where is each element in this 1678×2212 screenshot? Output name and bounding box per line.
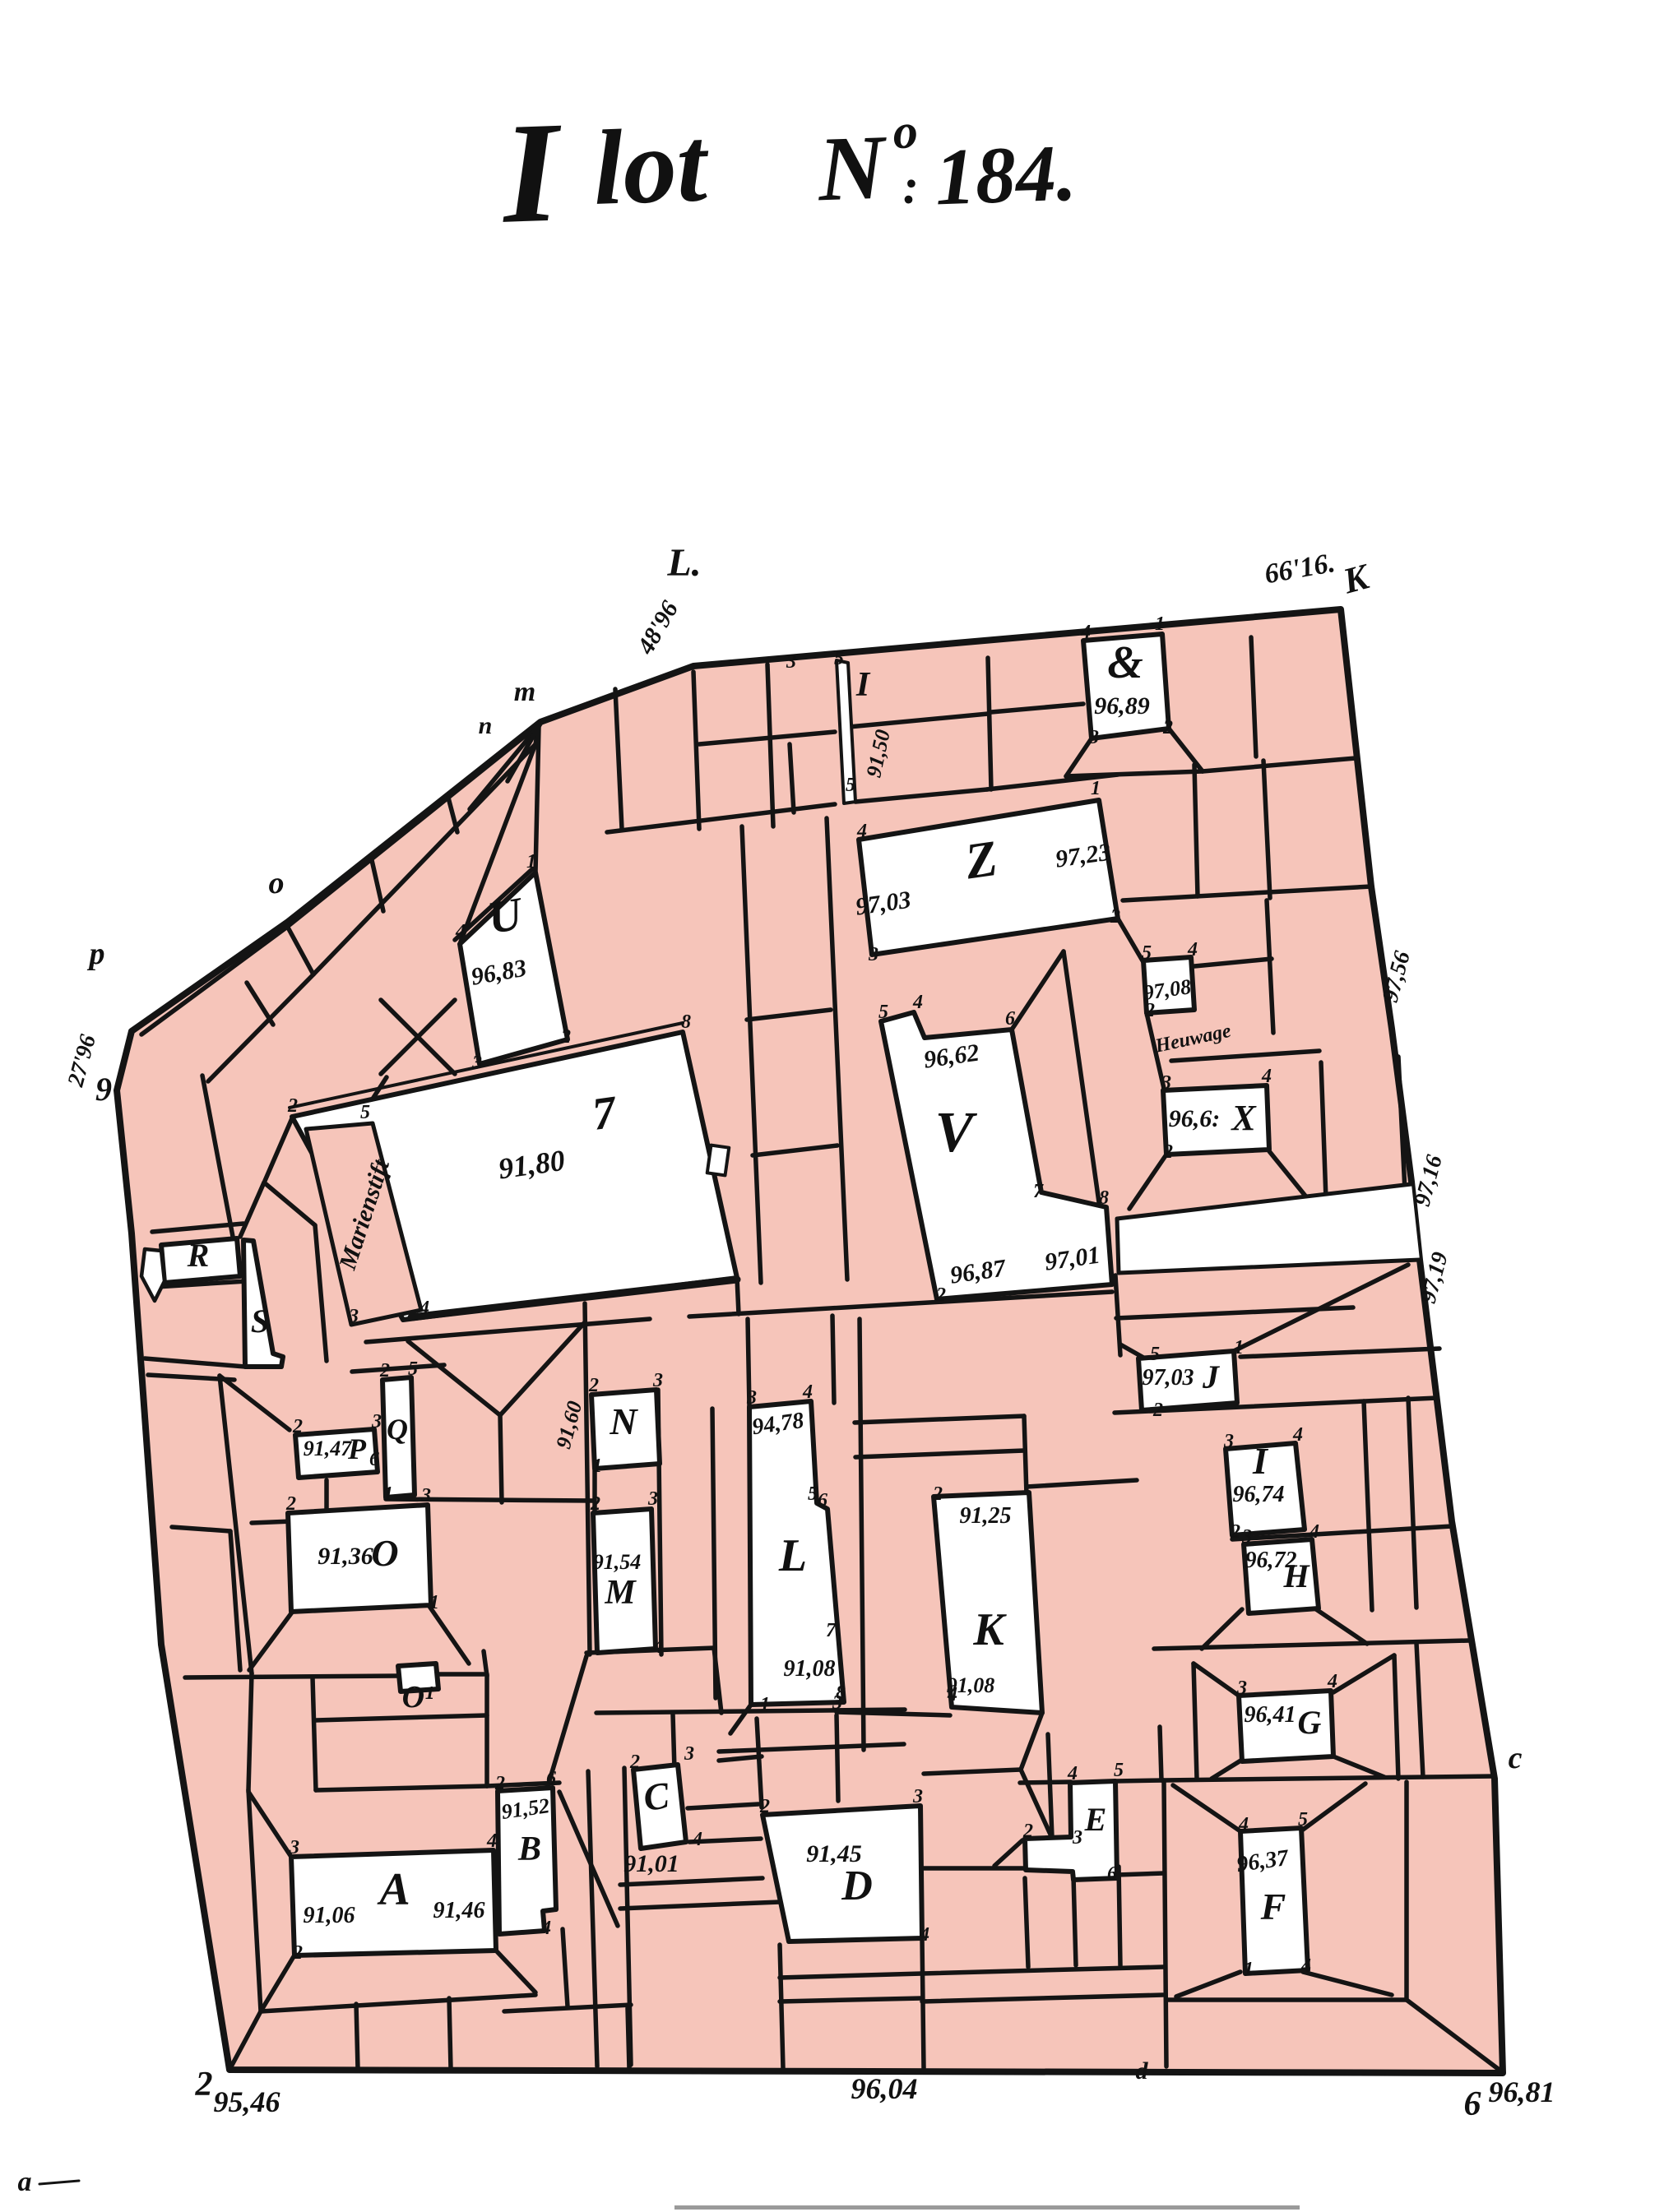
svg-text:97,16: 97,16 — [1410, 1152, 1448, 1209]
svg-text:95,46: 95,46 — [214, 2085, 280, 2118]
svg-text:1: 1 — [429, 1592, 439, 1613]
svg-text:2: 2 — [1152, 1400, 1163, 1421]
svg-text:a: a — [18, 2167, 32, 2197]
svg-text:I: I — [1252, 1440, 1269, 1482]
svg-text:91,54: 91,54 — [593, 1550, 642, 1574]
svg-text:2: 2 — [292, 1942, 303, 1964]
svg-text:4: 4 — [1292, 1424, 1303, 1446]
svg-text:91,47: 91,47 — [304, 1437, 353, 1460]
svg-text:3: 3 — [868, 944, 878, 965]
svg-text:A: A — [377, 1864, 410, 1915]
svg-text:2: 2 — [759, 1796, 770, 1817]
svg-text:4: 4 — [1309, 1521, 1319, 1543]
svg-text:2: 2 — [1110, 906, 1120, 928]
svg-text:4: 4 — [1187, 939, 1198, 960]
svg-text:5: 5 — [360, 1102, 370, 1123]
svg-text:2: 2 — [590, 1493, 600, 1515]
svg-text:2: 2 — [1144, 1000, 1155, 1021]
svg-text:X: X — [1230, 1098, 1257, 1138]
svg-text:O¹: O¹ — [402, 1680, 434, 1715]
svg-text:O: O — [371, 1532, 398, 1574]
svg-text:91,06: 91,06 — [304, 1903, 355, 1928]
svg-text:1: 1 — [760, 1694, 770, 1715]
svg-text:8: 8 — [681, 1011, 691, 1033]
svg-text:o: o — [269, 866, 285, 900]
svg-text:P: P — [347, 1432, 367, 1465]
svg-text:5: 5 — [408, 1358, 418, 1380]
svg-text:I: I — [498, 91, 567, 253]
svg-text:5: 5 — [808, 1483, 818, 1505]
svg-text:3: 3 — [912, 1786, 923, 1807]
svg-text:D: D — [841, 1863, 873, 1909]
svg-text:2: 2 — [1022, 1821, 1033, 1842]
svg-text:3: 3 — [348, 1306, 359, 1327]
svg-text:2: 2 — [287, 1095, 298, 1117]
svg-text:4: 4 — [486, 1830, 497, 1852]
svg-text:2: 2 — [629, 1752, 640, 1773]
svg-text:3: 3 — [1241, 1526, 1252, 1548]
svg-text:96,81: 96,81 — [1489, 2075, 1555, 2108]
svg-text:3: 3 — [1223, 1431, 1234, 1452]
svg-text:91,08: 91,08 — [784, 1656, 836, 1682]
svg-text:97,03: 97,03 — [1143, 1365, 1194, 1391]
svg-text:E: E — [1084, 1801, 1107, 1838]
svg-text:7: 7 — [1033, 1181, 1044, 1202]
svg-text:96,04: 96,04 — [851, 2072, 918, 2105]
svg-text:o: o — [892, 104, 919, 159]
svg-text:N: N — [815, 117, 890, 221]
svg-text:m: m — [514, 677, 535, 707]
svg-text:2: 2 — [932, 1483, 943, 1505]
svg-text:4: 4 — [919, 1924, 929, 1946]
svg-text:V: V — [935, 1101, 978, 1164]
svg-text:H: H — [1282, 1557, 1310, 1594]
svg-text:4: 4 — [1261, 1066, 1272, 1087]
svg-text:5: 5 — [1298, 1809, 1308, 1830]
svg-text:R: R — [187, 1237, 210, 1274]
svg-text:96,41: 96,41 — [1245, 1702, 1296, 1728]
svg-text:4: 4 — [856, 821, 867, 842]
svg-text:48'96: 48'96 — [632, 596, 684, 659]
svg-text:2: 2 — [285, 1493, 296, 1515]
svg-text:2: 2 — [292, 1416, 303, 1437]
svg-text:4: 4 — [947, 1684, 957, 1705]
svg-text:F: F — [1260, 1886, 1286, 1927]
svg-text:3: 3 — [1088, 727, 1099, 748]
svg-text:K: K — [972, 1604, 1007, 1655]
svg-text:2: 2 — [1162, 1141, 1173, 1163]
svg-text:4: 4 — [692, 1829, 702, 1850]
svg-text:3: 3 — [1161, 1072, 1171, 1094]
svg-text:3: 3 — [420, 1485, 431, 1506]
svg-text:4: 4 — [1238, 1814, 1249, 1835]
svg-text:2: 2 — [560, 1026, 571, 1048]
svg-text:c: c — [1509, 1741, 1523, 1775]
svg-text:d: d — [1136, 2057, 1149, 2085]
svg-text:n: n — [479, 712, 493, 739]
svg-text:7: 7 — [826, 1620, 837, 1641]
svg-text:3: 3 — [746, 1387, 757, 1409]
svg-text:B: B — [517, 1830, 541, 1868]
svg-text:K: K — [1338, 556, 1375, 602]
svg-text:3: 3 — [786, 651, 796, 673]
svg-text:6: 6 — [369, 1449, 379, 1470]
svg-text:91,36: 91,36 — [318, 1543, 373, 1570]
svg-text:96,74: 96,74 — [1233, 1482, 1285, 1507]
svg-text:6: 6 — [546, 1768, 556, 1789]
svg-text:4: 4 — [912, 992, 923, 1013]
svg-text:5: 5 — [834, 648, 844, 669]
svg-text:91,46: 91,46 — [433, 1898, 485, 1923]
svg-text:2: 2 — [195, 2066, 213, 2103]
svg-text:N: N — [609, 1400, 638, 1442]
svg-text:3: 3 — [371, 1411, 382, 1432]
svg-text:2: 2 — [1162, 717, 1173, 738]
svg-text:2: 2 — [935, 1284, 946, 1306]
svg-text:4: 4 — [1067, 1763, 1078, 1784]
svg-text:p: p — [87, 937, 105, 971]
svg-text:L: L — [778, 1530, 807, 1581]
svg-text:4: 4 — [540, 1918, 551, 1939]
svg-text:4: 4 — [455, 921, 466, 942]
svg-text:2: 2 — [1230, 1521, 1240, 1543]
svg-text:G: G — [1298, 1704, 1322, 1741]
svg-text:I: I — [855, 666, 871, 704]
svg-text:1: 1 — [592, 1455, 602, 1477]
svg-text:5: 5 — [1114, 1760, 1124, 1781]
svg-text:&: & — [1107, 637, 1143, 688]
svg-text:3: 3 — [1072, 1827, 1082, 1849]
svg-text:1: 1 — [526, 851, 536, 872]
svg-text:91,01: 91,01 — [623, 1850, 679, 1877]
svg-text:6: 6 — [818, 1490, 827, 1511]
svg-text:4: 4 — [802, 1381, 813, 1403]
svg-text:4: 4 — [1300, 1955, 1311, 1977]
svg-text:3: 3 — [1236, 1678, 1247, 1699]
svg-text:J: J — [1202, 1358, 1221, 1395]
svg-text:3: 3 — [832, 1692, 842, 1714]
svg-text:3: 3 — [684, 1743, 694, 1765]
svg-text:9: 9 — [95, 1071, 112, 1108]
svg-text:1: 1 — [1244, 1959, 1254, 1980]
svg-text:lot: lot — [591, 105, 712, 228]
svg-text:1: 1 — [1091, 778, 1101, 799]
svg-text:4: 4 — [652, 1636, 663, 1658]
svg-text:2: 2 — [379, 1360, 390, 1381]
svg-text:L.: L. — [666, 541, 701, 585]
svg-text:S: S — [251, 1303, 269, 1340]
svg-text:5: 5 — [1150, 1344, 1160, 1365]
svg-text:184.: 184. — [934, 129, 1078, 223]
svg-text:1: 1 — [383, 1483, 393, 1505]
svg-text:5: 5 — [846, 775, 855, 796]
svg-text:6: 6 — [1107, 1863, 1117, 1885]
svg-text:3: 3 — [647, 1488, 658, 1510]
svg-text:Q: Q — [387, 1413, 408, 1446]
svg-text:1: 1 — [1155, 613, 1165, 635]
svg-text:2: 2 — [494, 1773, 505, 1794]
svg-text:M: M — [604, 1574, 637, 1612]
svg-text:3: 3 — [289, 1837, 299, 1858]
svg-text:66'16.: 66'16. — [1263, 548, 1337, 590]
svg-text:2: 2 — [588, 1375, 599, 1396]
svg-text:8: 8 — [1099, 1187, 1109, 1209]
svg-text:3: 3 — [471, 1053, 482, 1074]
svg-text:4: 4 — [1080, 622, 1091, 643]
svg-text:4: 4 — [419, 1298, 429, 1319]
svg-text:3: 3 — [652, 1370, 663, 1391]
svg-text:5: 5 — [878, 1002, 888, 1023]
svg-text:1: 1 — [1234, 1337, 1244, 1358]
svg-text:91,25: 91,25 — [960, 1503, 1012, 1529]
svg-text:6: 6 — [1005, 1008, 1015, 1030]
svg-text::: : — [902, 159, 920, 214]
svg-text:4: 4 — [1327, 1671, 1337, 1692]
svg-text:5: 5 — [1142, 942, 1152, 964]
svg-text:96,6:: 96,6: — [1169, 1105, 1221, 1132]
svg-text:6: 6 — [1464, 2085, 1481, 2123]
svg-text:96,89: 96,89 — [1094, 692, 1150, 720]
